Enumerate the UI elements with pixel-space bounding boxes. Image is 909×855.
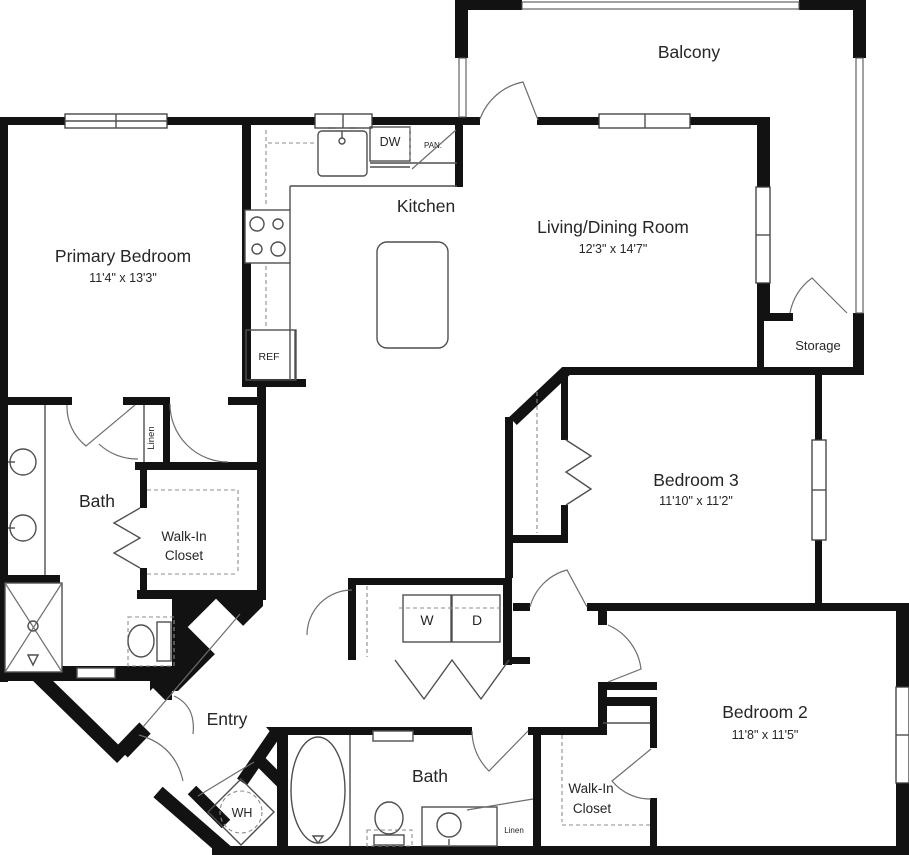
primary-sink-2 <box>8 515 36 541</box>
bedroom3-label: Bedroom 3 <box>653 470 739 490</box>
refrigerator-label: REF <box>259 351 280 363</box>
shower <box>5 583 62 672</box>
doors <box>67 82 847 799</box>
dryer-label: D <box>472 612 482 628</box>
storage-label: Storage <box>795 338 841 353</box>
bedroom2-closet-label-2: Closet <box>573 801 612 816</box>
kitchen-sink <box>318 128 367 176</box>
bedroom2-door <box>608 625 641 682</box>
kitchen-island <box>377 242 448 348</box>
bath2-fixtures <box>291 731 533 846</box>
bath2-label: Bath <box>412 766 448 786</box>
bath2-linen-label: Linen <box>504 826 524 835</box>
bath2-toilet <box>367 802 412 846</box>
water-heater-label: WH <box>232 806 253 820</box>
primary-bath-label: Bath <box>79 491 115 511</box>
bedroom3-window <box>812 440 826 540</box>
bathtub <box>291 737 345 843</box>
primary-bedroom-window <box>65 114 167 128</box>
bedroom3-door <box>530 570 587 607</box>
balcony-label: Balcony <box>658 42 721 62</box>
bedroom2-closet-label-1: Walk-In <box>568 781 613 796</box>
bedroom2-dims: 11'8" x 11'5" <box>732 728 799 742</box>
living-dining-dims: 12'3" x 14'7" <box>579 242 648 256</box>
bath2-vanity <box>422 807 497 846</box>
primary-bath-door <box>67 405 135 446</box>
bedroom2-window <box>896 687 909 783</box>
living-room-side-window <box>756 187 770 283</box>
primary-bath-cabinet <box>77 668 115 678</box>
primary-bedroom-label: Primary Bedroom <box>55 246 191 266</box>
balcony-door <box>480 82 538 120</box>
bath2-door <box>472 731 528 771</box>
laundry-bifold-doors <box>395 660 509 699</box>
washer-label: W <box>420 612 434 628</box>
bedroom2-label: Bedroom 2 <box>722 702 808 722</box>
living-room-balcony-window <box>599 114 690 128</box>
bedroom3-closet-bifold-door <box>566 440 591 505</box>
storage-door <box>790 278 847 313</box>
primary-bedroom-door <box>170 404 228 462</box>
primary-closet-bifold-door <box>114 508 140 568</box>
pantry-label: PAN. <box>424 141 442 150</box>
stove <box>245 210 290 263</box>
kitchen-fixtures <box>245 127 457 380</box>
entry-label: Entry <box>207 709 248 729</box>
primary-linen-door-swing <box>99 444 138 459</box>
kitchen-label: Kitchen <box>397 196 455 216</box>
primary-closet-label-1: Walk-In <box>161 529 206 544</box>
coat-closet-door <box>307 590 352 635</box>
laundry-closet <box>367 586 509 699</box>
primary-sink-1 <box>8 449 36 475</box>
living-dining-label: Living/Dining Room <box>537 217 689 237</box>
primary-bedroom-dims: 11'4" x 13'3" <box>89 271 157 285</box>
primary-linen-label: Linen <box>146 426 157 449</box>
dishwasher-label: DW <box>380 135 401 149</box>
bedroom2-closet-door <box>612 749 651 799</box>
bedroom3-dims: 11'10" x 11'2" <box>659 494 733 508</box>
bath2-cabinet <box>373 731 413 741</box>
primary-closet-label-2: Closet <box>165 548 204 563</box>
vestibule-door-swing <box>174 696 193 734</box>
kitchen-sink-window <box>315 114 372 128</box>
bath2-linen-front <box>467 799 533 810</box>
entry-front-door <box>139 735 183 781</box>
floor-plan: Balcony Living/Dining Room 12'3" x 14'7"… <box>0 0 909 855</box>
primary-toilet <box>128 617 174 666</box>
